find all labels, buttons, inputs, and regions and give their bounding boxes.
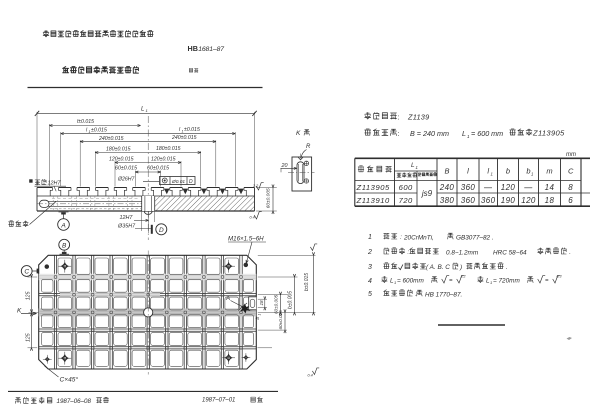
- svg-text:125: 125: [25, 291, 31, 300]
- svg-text:.: .: [569, 250, 571, 256]
- svg-text:mm: mm: [566, 152, 576, 158]
- svg-text:12H7: 12H7: [48, 181, 62, 187]
- svg-text:D: D: [159, 227, 164, 234]
- svg-text:R: R: [306, 144, 311, 150]
- svg-text::: :: [398, 115, 400, 122]
- svg-text:b±0.005: b±0.005: [288, 291, 294, 309]
- svg-text:60±0.015: 60±0.015: [115, 166, 137, 172]
- svg-text:—: —: [523, 183, 533, 192]
- svg-text:): ): [459, 264, 462, 271]
- svg-text:240: 240: [439, 183, 455, 192]
- svg-text:1681–87: 1681–87: [198, 46, 224, 53]
- svg-text:3.2: 3.2: [253, 184, 259, 188]
- svg-text:60±0.015: 60±0.015: [147, 166, 169, 172]
- svg-text:b: b: [255, 317, 260, 320]
- svg-text::: :: [398, 131, 400, 138]
- svg-text:A: A: [60, 222, 66, 229]
- svg-text:4: 4: [368, 278, 372, 285]
- svg-text:190: 190: [501, 196, 516, 205]
- svg-text:b: b: [526, 167, 530, 176]
- svg-text:=: =: [449, 278, 453, 284]
- svg-text:D: D: [189, 179, 193, 185]
- svg-text:= 600 mm: = 600 mm: [471, 129, 503, 138]
- svg-text:125: 125: [25, 333, 31, 342]
- svg-text:L: L: [141, 107, 144, 113]
- svg-text:0.4: 0.4: [308, 374, 313, 378]
- svg-text:180±0.015: 180±0.015: [106, 147, 131, 153]
- svg-text:Ø35H7: Ø35H7: [117, 224, 136, 230]
- svg-text:m: m: [546, 167, 552, 176]
- svg-text:0.4: 0.4: [250, 216, 255, 220]
- svg-text:0.8~1.2mm: 0.8~1.2mm: [446, 250, 479, 257]
- svg-text:1: 1: [368, 234, 372, 241]
- svg-text:1987–06–08: 1987–06–08: [57, 398, 92, 405]
- svg-text:Ø26H7: Ø26H7: [117, 177, 136, 183]
- svg-text:3: 3: [368, 264, 372, 271]
- svg-text:HRC 58~64: HRC 58~64: [493, 250, 527, 257]
- svg-text:20CrMnTi,: 20CrMnTi,: [403, 235, 434, 242]
- svg-text:= 600mm: = 600mm: [397, 278, 424, 285]
- svg-text:380: 380: [440, 196, 455, 205]
- svg-text:= 720mm: = 720mm: [493, 278, 520, 285]
- svg-text:Z113905: Z113905: [532, 129, 565, 138]
- svg-text:Z113910: Z113910: [356, 196, 390, 205]
- svg-text:120: 120: [501, 183, 516, 192]
- svg-text:K: K: [296, 130, 301, 137]
- svg-text:120±0.015: 120±0.015: [151, 157, 176, 163]
- svg-text:L: L: [411, 162, 415, 169]
- svg-text:Ø0.01: Ø0.01: [171, 179, 185, 185]
- svg-text:—: —: [483, 183, 493, 192]
- svg-text:18: 18: [545, 196, 555, 205]
- svg-text:B: B: [62, 242, 67, 249]
- svg-text:6: 6: [568, 196, 573, 205]
- svg-text:12H7: 12H7: [120, 215, 134, 221]
- svg-text:60±0.005: 60±0.005: [266, 188, 272, 208]
- svg-text:600: 600: [399, 183, 413, 192]
- svg-text:180±0.015: 180±0.015: [156, 146, 181, 152]
- svg-text:5: 5: [368, 291, 372, 298]
- svg-text:1: 1: [531, 172, 533, 177]
- svg-text:1: 1: [258, 314, 262, 316]
- svg-text:240±0.015: 240±0.015: [98, 136, 124, 142]
- svg-text:B = 240 mm: B = 240 mm: [410, 129, 449, 138]
- svg-text:1987–07–01: 1987–07–01: [202, 398, 235, 404]
- svg-text:Z113905: Z113905: [356, 183, 390, 192]
- svg-text:L: L: [462, 129, 466, 138]
- svg-text:C: C: [24, 269, 29, 276]
- svg-text:8: 8: [568, 183, 573, 192]
- svg-text:1: 1: [490, 280, 492, 285]
- svg-text:2: 2: [367, 249, 372, 256]
- svg-text:C×45°: C×45°: [60, 376, 79, 384]
- svg-text:HB: HB: [188, 44, 198, 53]
- svg-text:240±0.015: 240±0.015: [171, 135, 197, 141]
- svg-text:360: 360: [481, 196, 496, 205]
- svg-text:1: 1: [416, 165, 418, 170]
- svg-text:C: C: [568, 167, 574, 176]
- svg-text:18: 18: [259, 300, 264, 306]
- svg-text:l±0.015: l±0.015: [77, 119, 94, 125]
- svg-text:GB3077–82 .: GB3077–82 .: [456, 235, 494, 242]
- svg-text:A: A: [225, 296, 230, 302]
- svg-text:b±0.015: b±0.015: [304, 273, 310, 291]
- svg-text:Z1139: Z1139: [407, 113, 429, 122]
- svg-text:1: 1: [491, 172, 493, 177]
- svg-text:B: B: [444, 167, 449, 176]
- svg-text:120±0.015: 120±0.015: [109, 157, 134, 163]
- svg-text:360: 360: [461, 183, 476, 192]
- svg-text:120: 120: [521, 196, 536, 205]
- svg-text:1: 1: [146, 108, 148, 113]
- svg-text:60±0.005: 60±0.005: [278, 310, 283, 330]
- svg-text:±0.015: ±0.015: [184, 127, 200, 133]
- svg-text:6.3: 6.3: [557, 275, 562, 279]
- svg-text:( A. B. C: ( A. B. C: [426, 264, 450, 271]
- svg-text:720: 720: [399, 196, 413, 205]
- svg-text:1: 1: [394, 280, 396, 285]
- svg-text:±0.015: ±0.015: [91, 128, 107, 134]
- svg-text:360: 360: [461, 196, 476, 205]
- svg-text:3.2: 3.2: [461, 275, 466, 279]
- svg-text:14: 14: [545, 183, 555, 192]
- svg-text:HB 1770–87.: HB 1770–87.: [425, 292, 462, 299]
- svg-text:=: =: [545, 278, 549, 284]
- svg-text:b: b: [506, 167, 510, 176]
- svg-text:.: .: [506, 265, 508, 271]
- svg-text:js9: js9: [421, 189, 433, 198]
- svg-text:M16×1.5–6H: M16×1.5–6H: [228, 236, 264, 243]
